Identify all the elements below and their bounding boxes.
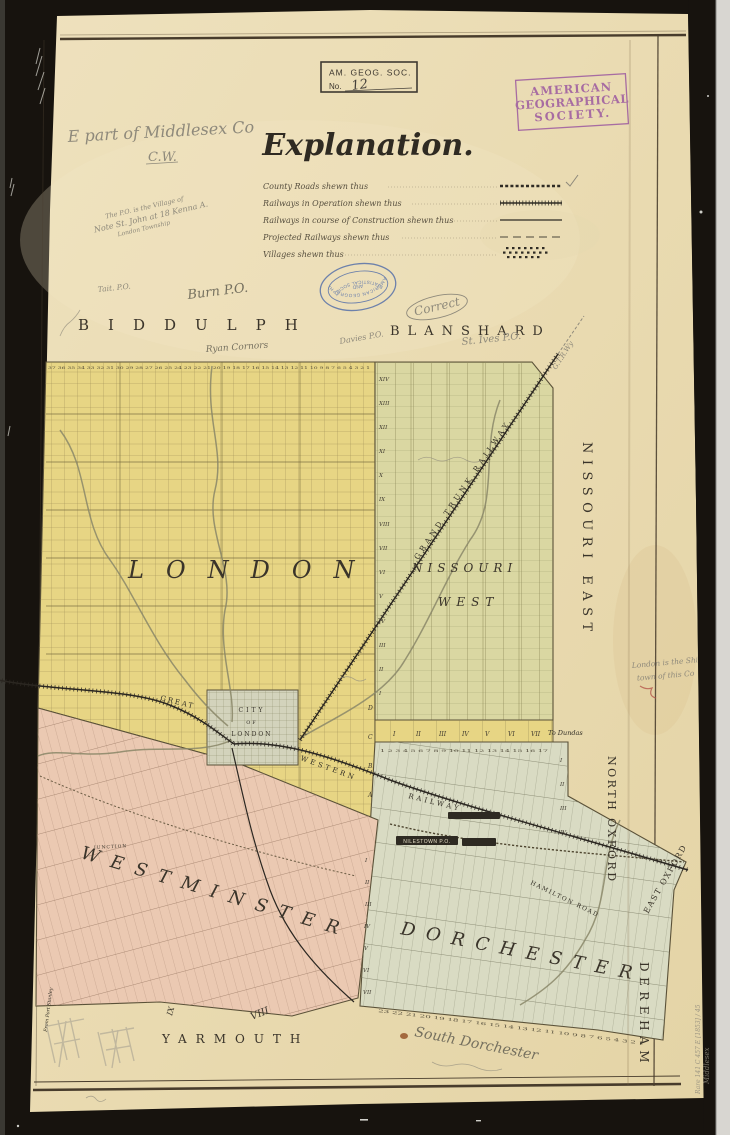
svg-text:IV: IV — [461, 731, 469, 738]
nissouri-name: NISSOURI — [411, 561, 517, 575]
svg-text:IV: IV — [559, 830, 567, 836]
photo-right-sliver — [716, 0, 730, 1135]
svg-text:V: V — [485, 731, 490, 738]
station-label-bar — [462, 838, 496, 846]
svg-text:III: III — [559, 806, 567, 812]
left-edge-shade — [0, 0, 5, 1135]
svg-text:XI: XI — [378, 449, 386, 455]
svg-text:Middlesex: Middlesex — [703, 1048, 711, 1085]
to-dundas-label: To Dundas — [548, 729, 583, 737]
svg-text:A: A — [367, 792, 373, 799]
svg-text:VI: VI — [379, 570, 386, 576]
accession-stamp-line1: AM. GEOG. SOC. — [329, 68, 411, 78]
accession-stamp-no: No. — [329, 82, 341, 91]
legend-label-railways-operation: Railways in Operation shewn thus — [262, 199, 402, 208]
legend-label-projected-railways: Projected Railways shewn thus — [262, 233, 389, 242]
yarmouth-name: YARMOUTH — [161, 1032, 309, 1046]
svg-text:XIII: XIII — [378, 401, 390, 407]
svg-text:VI: VI — [363, 968, 370, 974]
svg-text:IV: IV — [363, 924, 371, 930]
explanation-title: Explanation. — [261, 128, 473, 163]
accession-number: 12 — [350, 77, 368, 94]
svg-text:III: III — [364, 902, 372, 908]
svg-text:OF: OF — [246, 720, 258, 726]
svg-text:IV: IV — [378, 619, 386, 625]
svg-text:VIII: VIII — [379, 522, 390, 528]
nilestown-label: NILESTOWN P.O. — [403, 839, 450, 845]
svg-text:C: C — [368, 734, 373, 741]
legend-label-railways-construction: Railways in course of Construction shewn… — [262, 216, 453, 225]
dundas-lot-numbers: 1 2 3 4 5 6 7 8 9 10 11 12 13 14 15 16 1… — [380, 748, 549, 753]
north-oxford-name: NORTH OXFORD — [605, 756, 618, 884]
svg-text:IX: IX — [378, 497, 386, 503]
london-name: LONDON — [127, 556, 377, 584]
nissouri-west-name: WEST — [438, 595, 499, 609]
dereham-name: DEREHAM — [637, 962, 651, 1068]
photographed-map: NILESTOWN P.O. GREAT WESTERN RAILWAY GRA… — [0, 0, 730, 1135]
svg-text:II: II — [378, 667, 384, 673]
station-label-bar-2 — [448, 812, 500, 819]
svg-text:LONDON: LONDON — [231, 731, 272, 738]
svg-text:B: B — [367, 763, 373, 770]
nissouri-east-name: NISSOURI EAST — [579, 442, 594, 638]
svg-text:III: III — [438, 731, 447, 738]
svg-text:VII: VII — [379, 546, 388, 552]
svg-text:XIV: XIV — [378, 377, 390, 383]
svg-text:II: II — [559, 782, 565, 788]
svg-text:III: III — [378, 643, 386, 649]
london-lot-numbers: 37 36 35 34 33 32 31 30 29 28 27 26 25 2… — [48, 365, 370, 370]
legend-label-villages: Villages shewn thus — [263, 250, 344, 259]
svg-text:VII: VII — [531, 731, 541, 738]
svg-text:VII: VII — [363, 990, 372, 996]
svg-text:Rare 141 C 457 E [1853] / 45: Rare 141 C 457 E [1853] / 45 — [695, 1004, 702, 1095]
svg-text:CITY: CITY — [239, 707, 266, 714]
brown-stain-spot — [400, 1033, 408, 1039]
svg-text:II: II — [364, 880, 370, 886]
svg-text:XII: XII — [378, 425, 388, 431]
biddulph-name: BIDDULPH — [78, 316, 317, 334]
legend-label-county-roads: County Roads shewn thus — [263, 182, 368, 191]
city-of-london-grid — [207, 690, 298, 765]
svg-text:II: II — [415, 731, 421, 738]
svg-text:D: D — [367, 705, 373, 712]
svg-text:VI: VI — [508, 731, 515, 738]
map-canvas: NILESTOWN P.O. GREAT WESTERN RAILWAY GRA… — [0, 0, 730, 1135]
